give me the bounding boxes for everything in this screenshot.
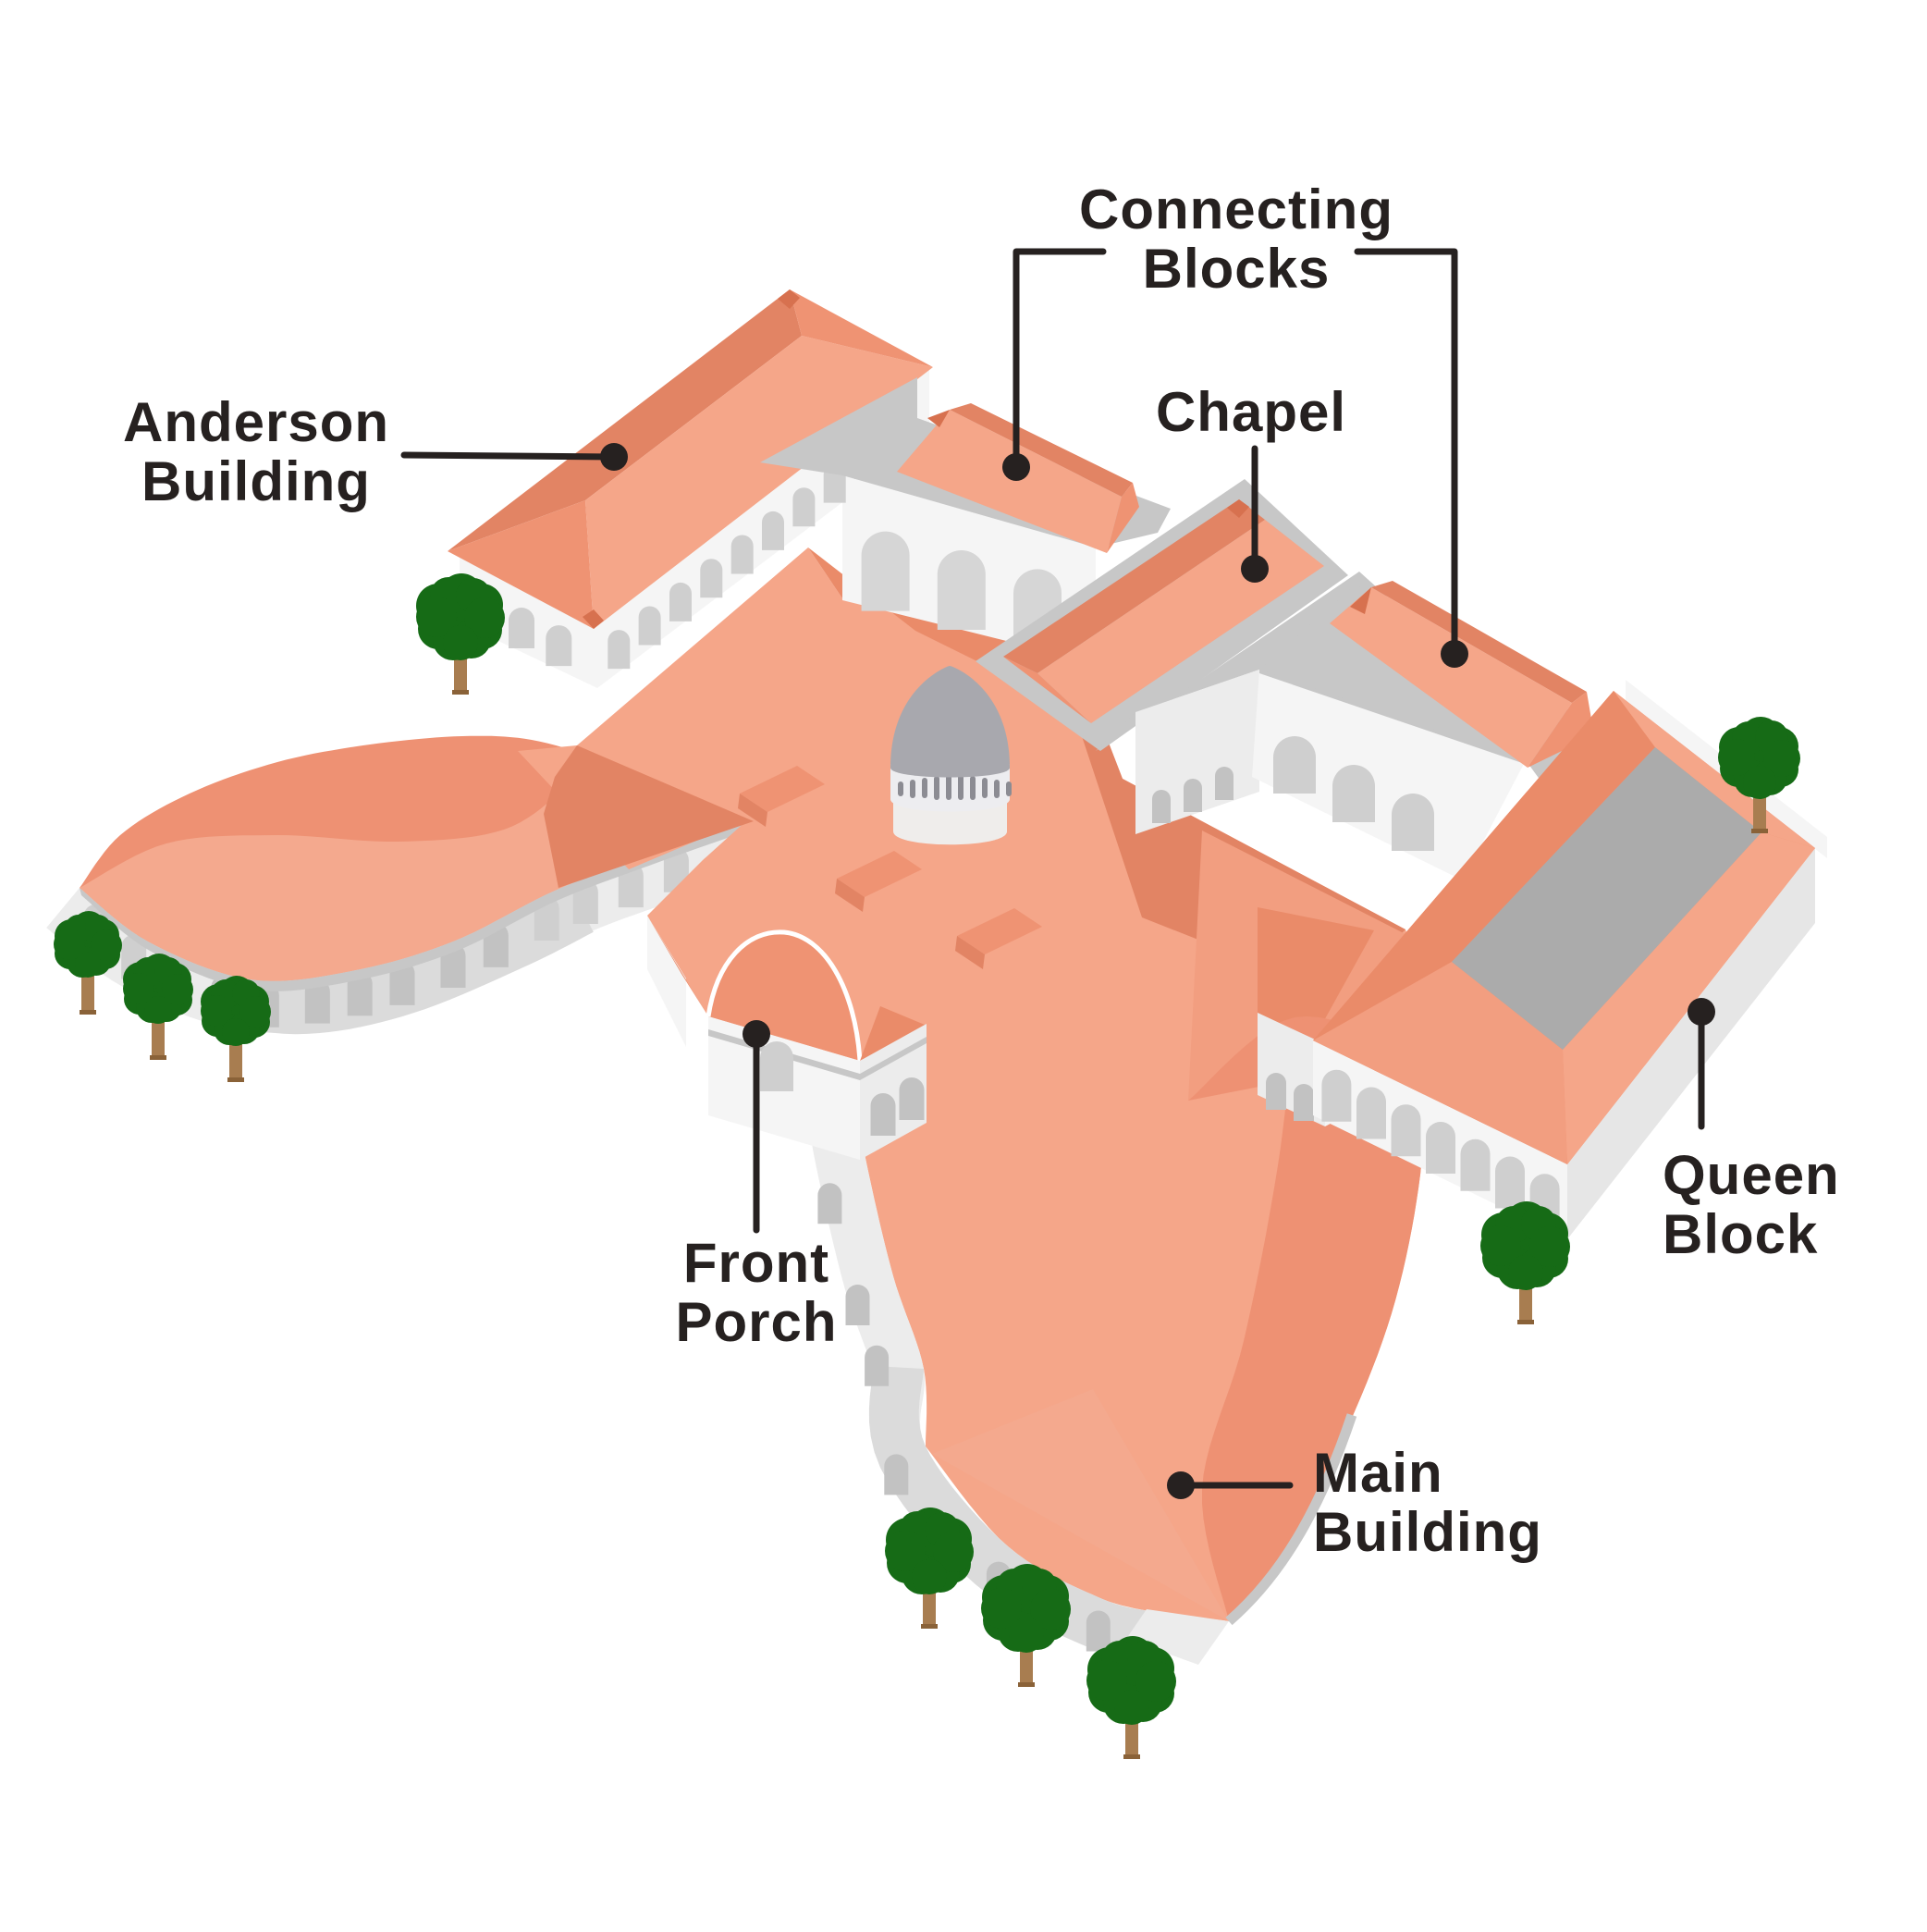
svg-text:Building: Building <box>1313 1501 1542 1563</box>
svg-text:Building: Building <box>141 450 371 512</box>
svg-text:Connecting: Connecting <box>1079 178 1393 240</box>
svg-text:Main: Main <box>1313 1442 1443 1504</box>
svg-text:Anderson: Anderson <box>123 391 389 453</box>
svg-text:Front: Front <box>683 1232 829 1294</box>
svg-text:Blocks: Blocks <box>1143 238 1331 300</box>
svg-text:Block: Block <box>1663 1203 1818 1265</box>
svg-text:Chapel: Chapel <box>1156 381 1346 443</box>
svg-text:Queen: Queen <box>1663 1144 1840 1206</box>
svg-text:Porch: Porch <box>675 1291 837 1353</box>
